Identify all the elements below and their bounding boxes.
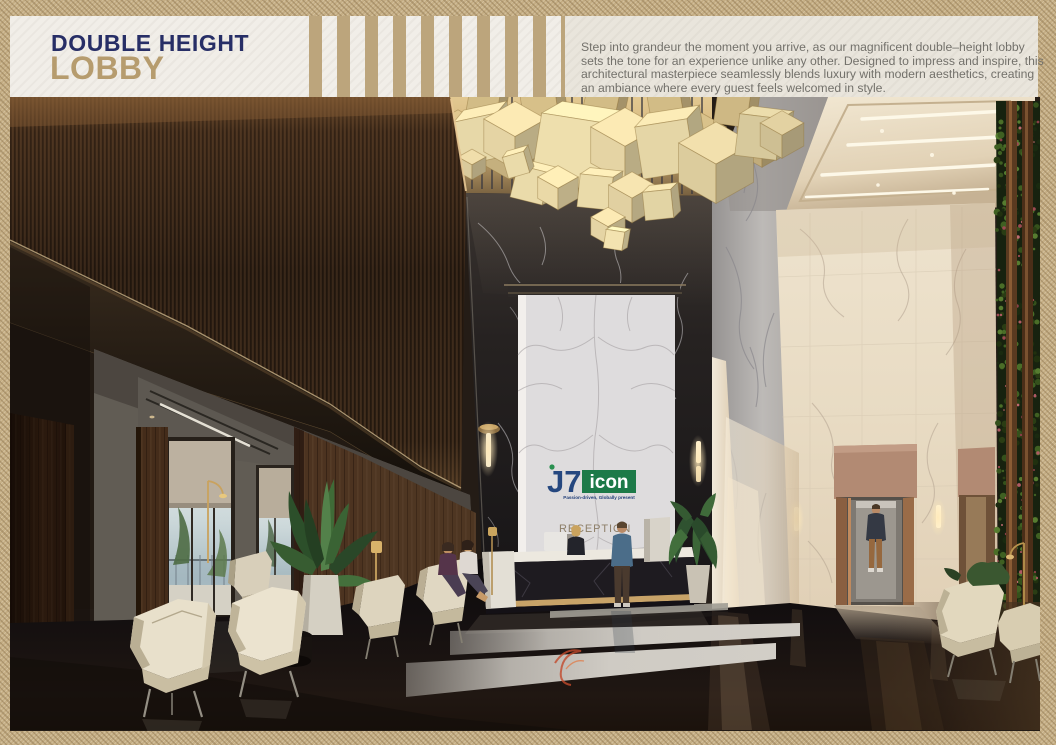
svg-text:icon: icon	[589, 472, 628, 493]
svg-text:Passion-driven, Globally prese: Passion-driven, Globally present	[563, 495, 635, 500]
